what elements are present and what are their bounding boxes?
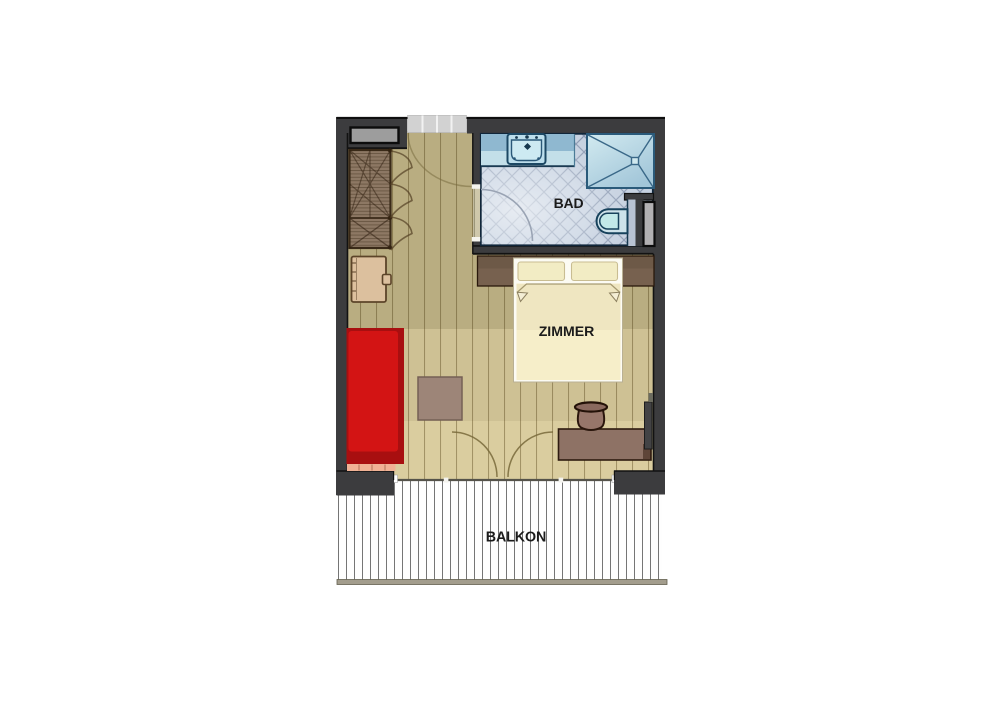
svg-text:ZIMMER: ZIMMER — [539, 323, 595, 339]
svg-text:BALKON: BALKON — [486, 530, 547, 546]
svg-text:BAD: BAD — [554, 195, 584, 211]
